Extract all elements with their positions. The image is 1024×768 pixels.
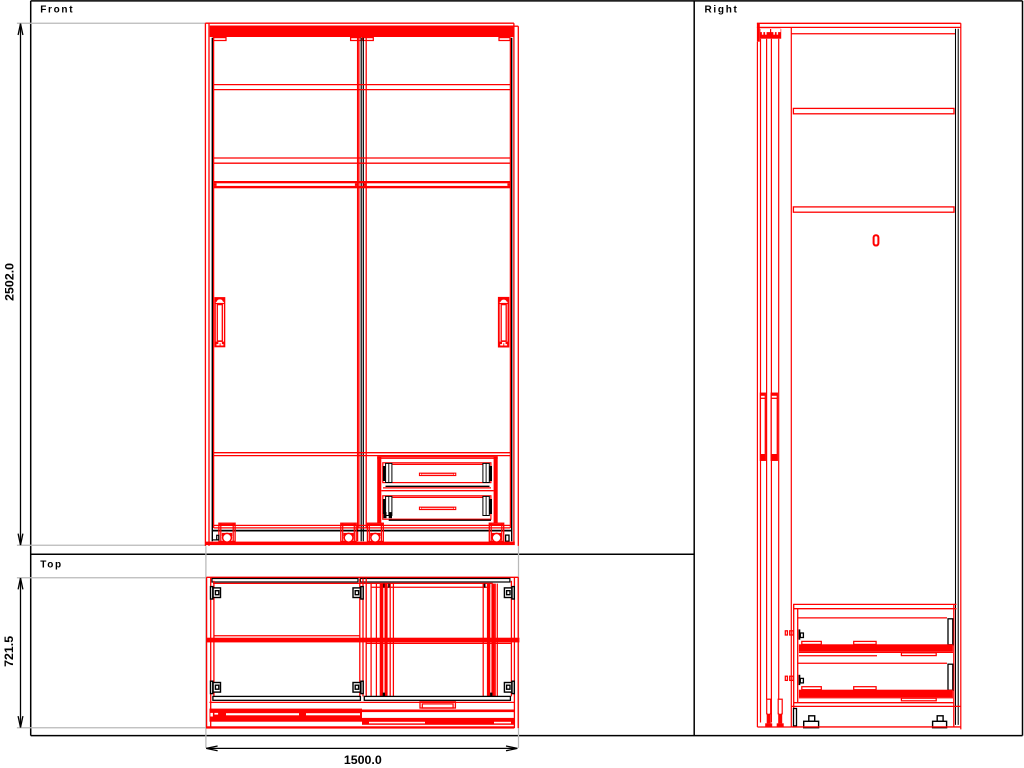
svg-text:Top: Top <box>40 559 63 570</box>
svg-text:Right: Right <box>705 4 739 15</box>
svg-text:721.5: 721.5 <box>2 636 16 667</box>
svg-text:2502.0: 2502.0 <box>2 263 16 301</box>
svg-text:Front: Front <box>40 4 74 15</box>
svg-text:1500.0: 1500.0 <box>344 753 382 767</box>
